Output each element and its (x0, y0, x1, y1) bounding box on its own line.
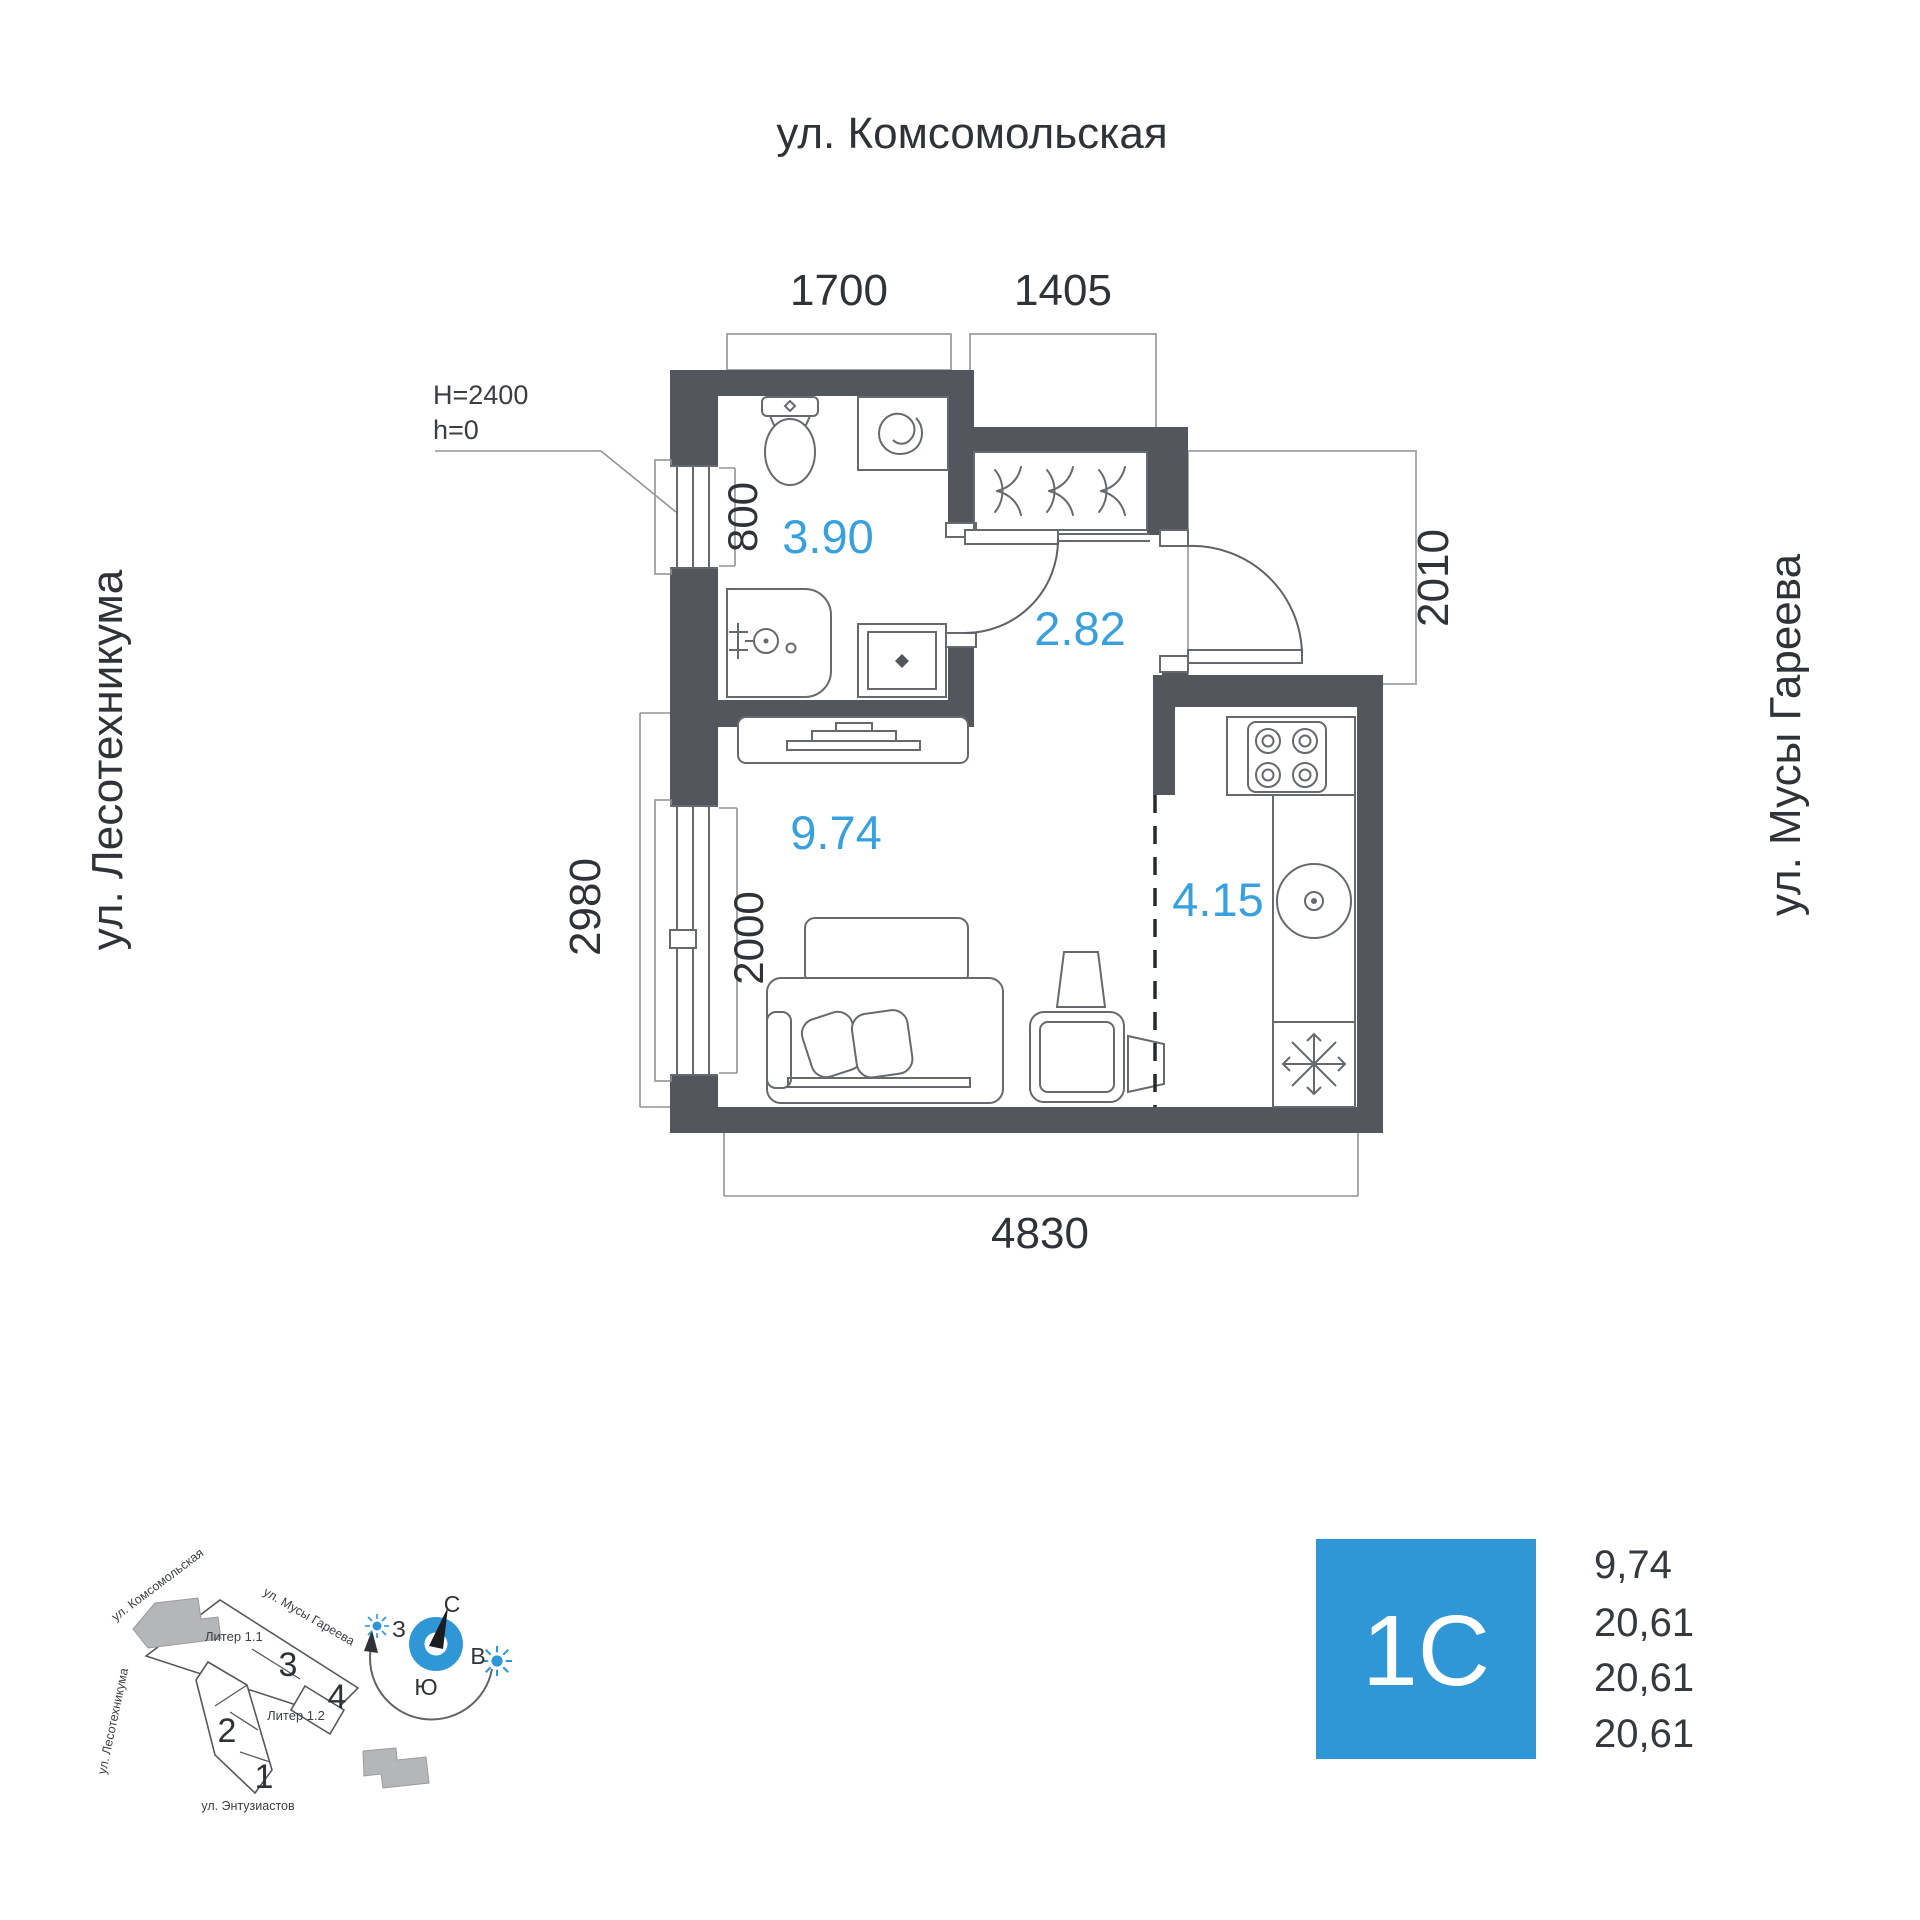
compass-east-label: В (470, 1643, 485, 1669)
door-jamb (1160, 656, 1188, 672)
street-label-right: ул. Мусы Гареева (1761, 553, 1810, 916)
street-label-top: ул. Комсомольская (776, 109, 1167, 158)
dim-800: 800 (719, 482, 766, 552)
area-kitchen: 4.15 (1172, 873, 1263, 926)
area-living: 9.74 (790, 806, 881, 859)
minimap-section-4: 4 (328, 1678, 347, 1716)
unit-info-block: 1С 9,74 20,61 20,61 20,61 (1316, 1539, 1694, 1759)
hanger-icon (995, 467, 1021, 515)
minimap-label-liter-1-2: Литер 1.2 (267, 1708, 325, 1723)
unit-area-value-4: 20,61 (1594, 1712, 1694, 1756)
stool-icon (1057, 952, 1105, 1007)
unit-area-value-3: 20,61 (1594, 1656, 1694, 1700)
unit-area-value-2: 20,61 (1594, 1601, 1694, 1645)
hanger-icon (1099, 467, 1125, 515)
height-note-line1: H=2400 (433, 380, 528, 410)
compass-south-label: Ю (414, 1674, 437, 1700)
table-icon (1030, 1012, 1124, 1102)
compass-north-label: С (444, 1591, 461, 1617)
minimap-street-lesotehnikuma: ул. Лесотехникума (95, 1667, 131, 1776)
dim-1700: 1700 (790, 266, 888, 315)
site-minimap: ул. Комсомольская ул. Мусы Гареева ул. Л… (95, 1546, 512, 1813)
floor-plan-canvas: ул. Комсомольская ул. Лесотехникума ул. … (0, 0, 1920, 1920)
dim-bracket-4830 (724, 1133, 1358, 1196)
living-window (655, 800, 718, 1081)
building-other-shape (363, 1748, 429, 1788)
dim-2010: 2010 (1409, 529, 1458, 627)
window-sill (655, 800, 671, 1081)
sun-west-icon (365, 1614, 389, 1638)
window-sill (655, 460, 671, 574)
minimap-section-1: 1 (255, 1758, 274, 1796)
window-handle (670, 930, 696, 948)
area-hallway: 2.82 (1034, 602, 1125, 655)
sun-east-icon (482, 1646, 512, 1676)
height-note-leader-line (435, 451, 676, 512)
sofa-icon (767, 918, 1003, 1103)
minimap-section-2: 2 (218, 1712, 237, 1750)
dim-box-1405 (970, 334, 1156, 430)
door-jamb (1160, 530, 1188, 546)
toilet-icon (762, 397, 818, 485)
washing-machine-icon (858, 397, 948, 470)
compass-arrowhead (364, 1630, 378, 1653)
street-label-left: ул. Лесотехникума (83, 569, 132, 950)
unit-type-label: 1С (1362, 1595, 1490, 1707)
kitchen-sink-icon (1277, 864, 1351, 938)
fridge-icon (1273, 1022, 1355, 1107)
door-leaf (965, 530, 1058, 544)
pillow-icon (850, 1008, 914, 1079)
compass-icon: С З В Ю (364, 1591, 512, 1719)
door-jamb (946, 633, 976, 647)
dim-4830: 4830 (991, 1209, 1089, 1258)
door-swing-arc (1188, 546, 1302, 656)
unit-area-value-1: 9,74 (1594, 1543, 1672, 1587)
area-bathroom: 3.90 (782, 510, 873, 563)
minimap-street-entuziastov: ул. Энтузиастов (201, 1799, 295, 1813)
minimap-label-liter-1-1: Литер 1.1 (205, 1629, 263, 1644)
bath-sink-icon (727, 589, 831, 697)
bathroom-window (655, 460, 718, 574)
dim-box-1700 (727, 334, 951, 370)
dim-2980: 2980 (561, 858, 610, 956)
stove-icon (1248, 722, 1326, 792)
dim-2000: 2000 (725, 891, 772, 984)
stool-icon (1128, 1036, 1164, 1092)
dim-1405: 1405 (1014, 266, 1112, 315)
tv-console-icon (738, 717, 968, 763)
door-leaf (1188, 650, 1302, 663)
table-and-stools-icon (1030, 952, 1164, 1102)
entrance-door (1160, 530, 1302, 672)
minimap-section-3: 3 (279, 1646, 298, 1684)
snowflake-icon (1283, 1034, 1345, 1094)
hanger-icon (1047, 467, 1073, 515)
wardrobe-icon (974, 452, 1147, 530)
height-note-line2: h=0 (433, 415, 479, 445)
shower-tray-icon (858, 624, 946, 697)
compass-west-label: З (392, 1616, 406, 1642)
